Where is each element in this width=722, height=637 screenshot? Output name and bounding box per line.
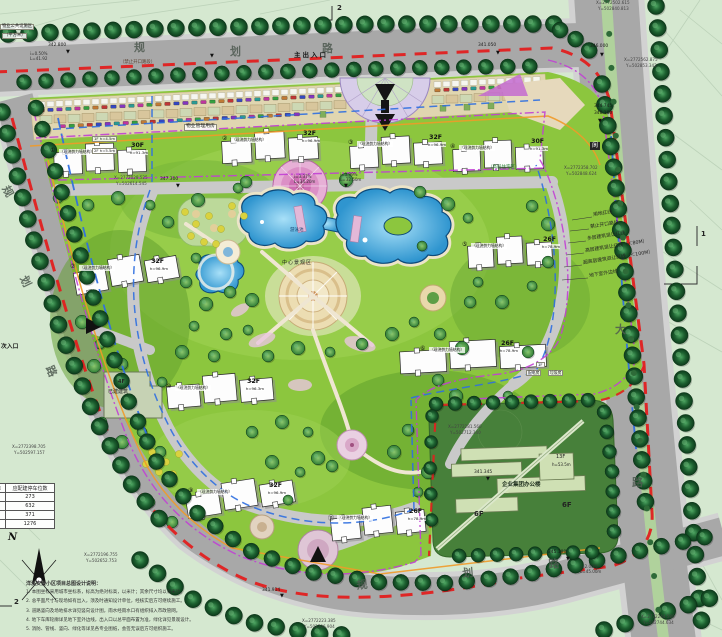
- parking-table-col2: 应配建停车位数: [6, 484, 55, 493]
- note-line: 5. 消防、管线、竖向、绿化等详见各专业图纸，会签无误后方可组织施工。: [26, 625, 374, 634]
- table-row: 1276: [0, 520, 55, 529]
- note-line: 3. 道路竖向及场地排水详见竖向设计图，雨水经雨水口有组织排入市政管网。: [26, 607, 374, 616]
- notes-title: 洋溪安置小区项目总图设计说明：: [26, 580, 374, 587]
- table-row: 371: [0, 511, 55, 520]
- parking-table: 标准 应配建停车位数 2736323711276: [0, 483, 55, 529]
- plan-graphics: [0, 0, 722, 637]
- design-notes: 洋溪安置小区项目总图设计说明： 1. 本图坐标采用城市坐标系，标高为绝对标高，以…: [26, 580, 374, 634]
- note-line: 1. 本图坐标采用城市坐标系，标高为绝对标高，以米计；其余尺寸均以毫米计。: [26, 588, 374, 597]
- table-row: 632: [0, 502, 55, 511]
- master-plan-drawing: 规划路主出入口（禁止开口路段）规划路次入口规划路大路阆342.800▼i=0.5…: [0, 0, 722, 637]
- note-line: 4. 地下车库轮廓详见地下室外边线，出入口以总平面布置为准，绿化详见景观设计。: [26, 616, 374, 625]
- table-row: 273: [0, 493, 55, 502]
- note-line: 2. 总平面尺寸与现场如有出入，须及时通知设计单位，经核实后方可继续施工。: [26, 597, 374, 606]
